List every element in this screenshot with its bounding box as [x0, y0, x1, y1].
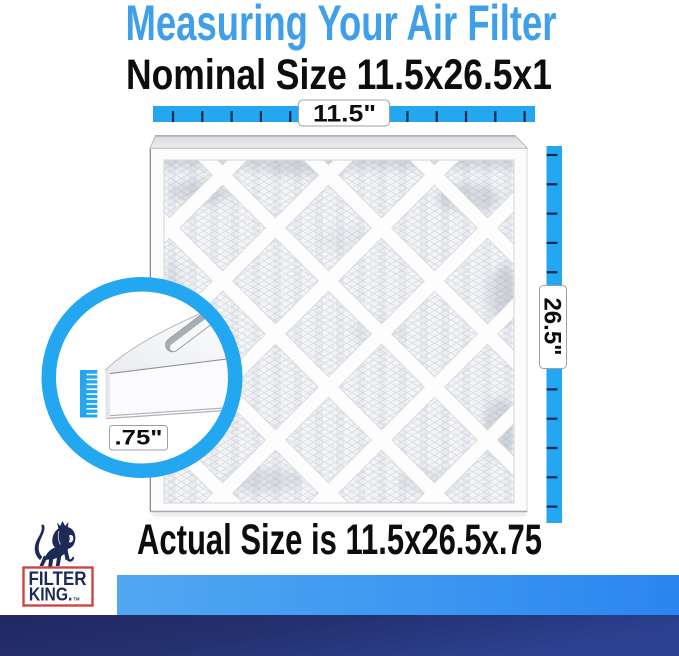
svg-text:11.5": 11.5": [313, 101, 376, 128]
svg-text:26.5": 26.5": [539, 297, 566, 355]
svg-text:KING.: KING.: [29, 584, 73, 605]
svg-text:.75": .75": [115, 427, 163, 450]
svg-text:Nominal Size 11.5x26.5x1: Nominal Size 11.5x26.5x1: [126, 51, 552, 99]
svg-text:Actual Size is 11.5x26.5x.75: Actual Size is 11.5x26.5x.75: [137, 516, 542, 564]
svg-text:Measuring Your Air Filter: Measuring Your Air Filter: [126, 0, 557, 51]
svg-text:TM: TM: [74, 597, 81, 602]
